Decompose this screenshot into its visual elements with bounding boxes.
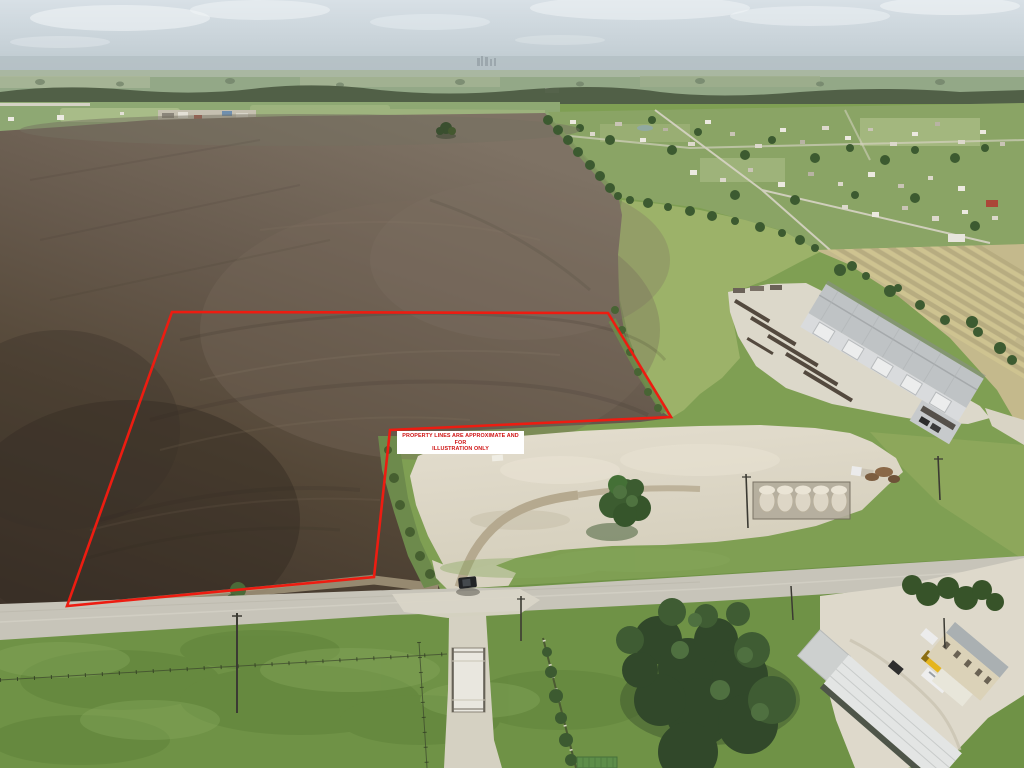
pond <box>637 125 653 131</box>
red-roof-building <box>986 200 998 207</box>
aerial-photo: PROPERTY LINES ARE APPROXIMATE AND FOR I… <box>0 0 1024 768</box>
storage-tanks <box>759 486 847 513</box>
disclaimer-line2: ILLUSTRATION ONLY <box>399 446 522 453</box>
disclaimer-line1: PROPERTY LINES ARE APPROXIMATE AND FOR <box>399 433 522 446</box>
aerial-scene <box>0 0 1024 768</box>
white-house <box>948 234 965 242</box>
cattle-guard <box>452 648 485 712</box>
disclaimer-box: PROPERTY LINES ARE APPROXIMATE AND FOR I… <box>397 431 524 454</box>
tank-battery <box>753 482 850 519</box>
sky <box>0 0 1024 80</box>
white-trailer <box>492 454 503 461</box>
distant-road <box>0 103 90 106</box>
